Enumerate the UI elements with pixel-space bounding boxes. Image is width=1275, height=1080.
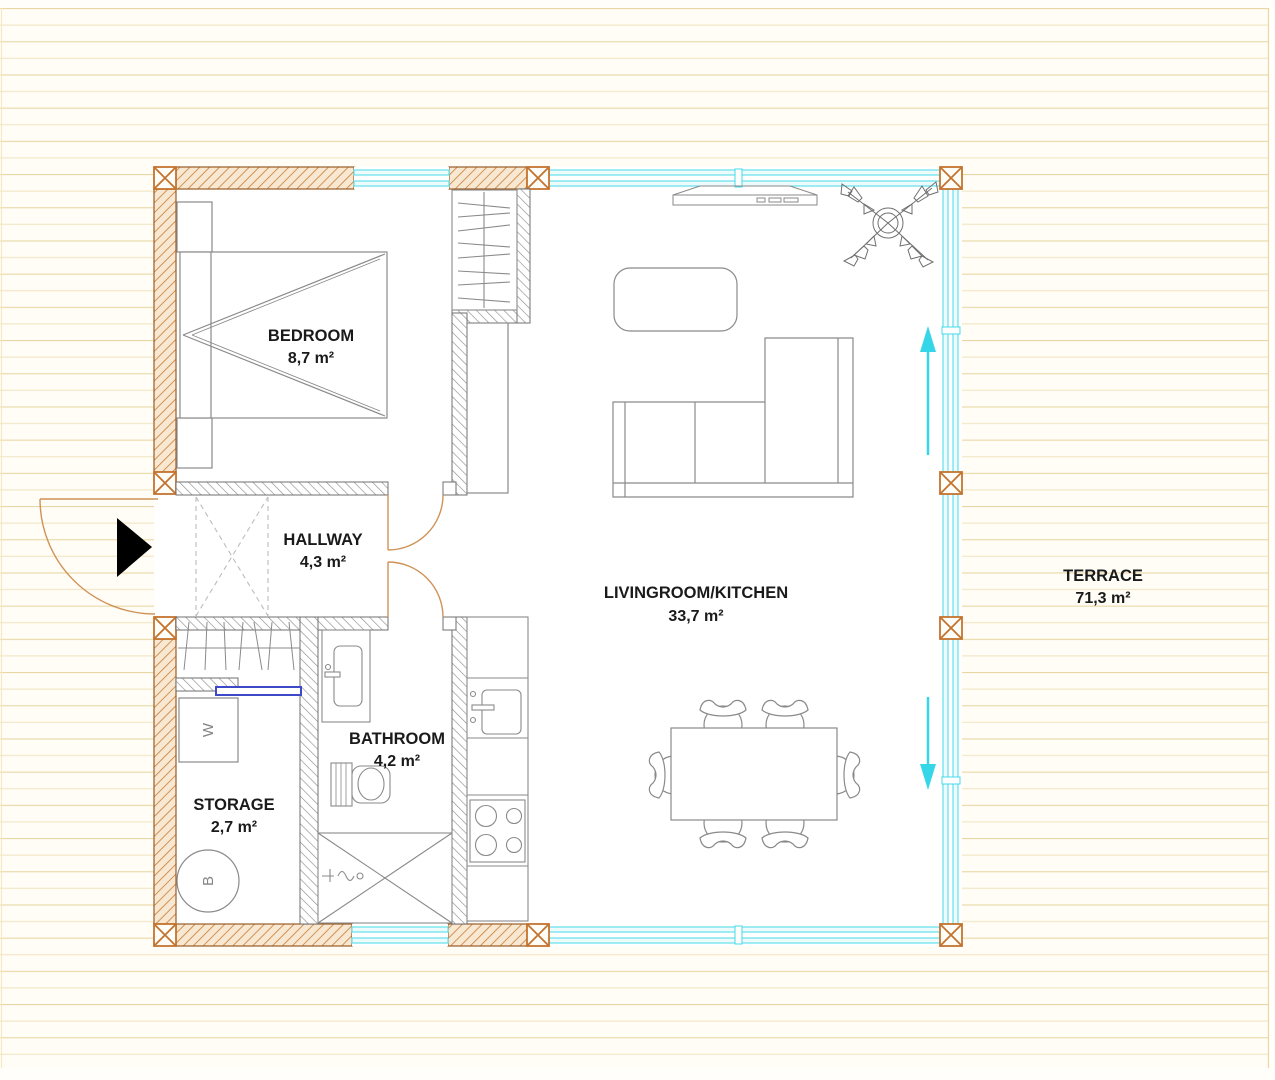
- nightstand-bottom: [177, 418, 212, 468]
- tall-cabinet: [467, 323, 508, 493]
- bathroom-vanity: [322, 630, 370, 722]
- terrace-area: 71,3 m²: [1075, 590, 1130, 607]
- terrace-label: TERRACE: [1063, 567, 1143, 585]
- floor-plan-canvas: W B: [0, 0, 1275, 1080]
- bathroom-window: [352, 924, 448, 946]
- bedroom-area: 8,7 m²: [288, 350, 334, 367]
- south-glass-wall: [549, 924, 940, 946]
- hallway-label: HALLWAY: [283, 531, 362, 549]
- storage-area: 2,7 m²: [211, 819, 257, 836]
- bathroom-label: BATHROOM: [349, 730, 445, 748]
- east-glass-wall: [940, 189, 962, 924]
- kitchen-counter: [467, 617, 528, 921]
- livingroom-area: 33,7 m²: [668, 608, 723, 625]
- livingroom-label: LIVINGROOM/KITCHEN: [604, 584, 788, 602]
- bathroom-area: 4,2 m²: [374, 753, 420, 770]
- dining-table: [671, 728, 837, 820]
- bedroom-window: [354, 167, 449, 189]
- shower: [318, 833, 452, 923]
- boiler-label: B: [200, 876, 217, 886]
- stove: [470, 800, 525, 862]
- wardrobe: [452, 190, 517, 310]
- storage-label: STORAGE: [193, 796, 274, 814]
- washing-machine-label: W: [200, 722, 217, 737]
- entrance-threshold: [154, 494, 176, 617]
- storage-sliding-door: [216, 687, 301, 695]
- washing-machine: W: [179, 698, 238, 762]
- coffee-table: [614, 268, 737, 331]
- bedroom-label: BEDROOM: [268, 327, 354, 345]
- boiler: B: [177, 850, 239, 912]
- hallway-area: 4,3 m²: [300, 554, 346, 571]
- nightstand-top: [177, 202, 212, 252]
